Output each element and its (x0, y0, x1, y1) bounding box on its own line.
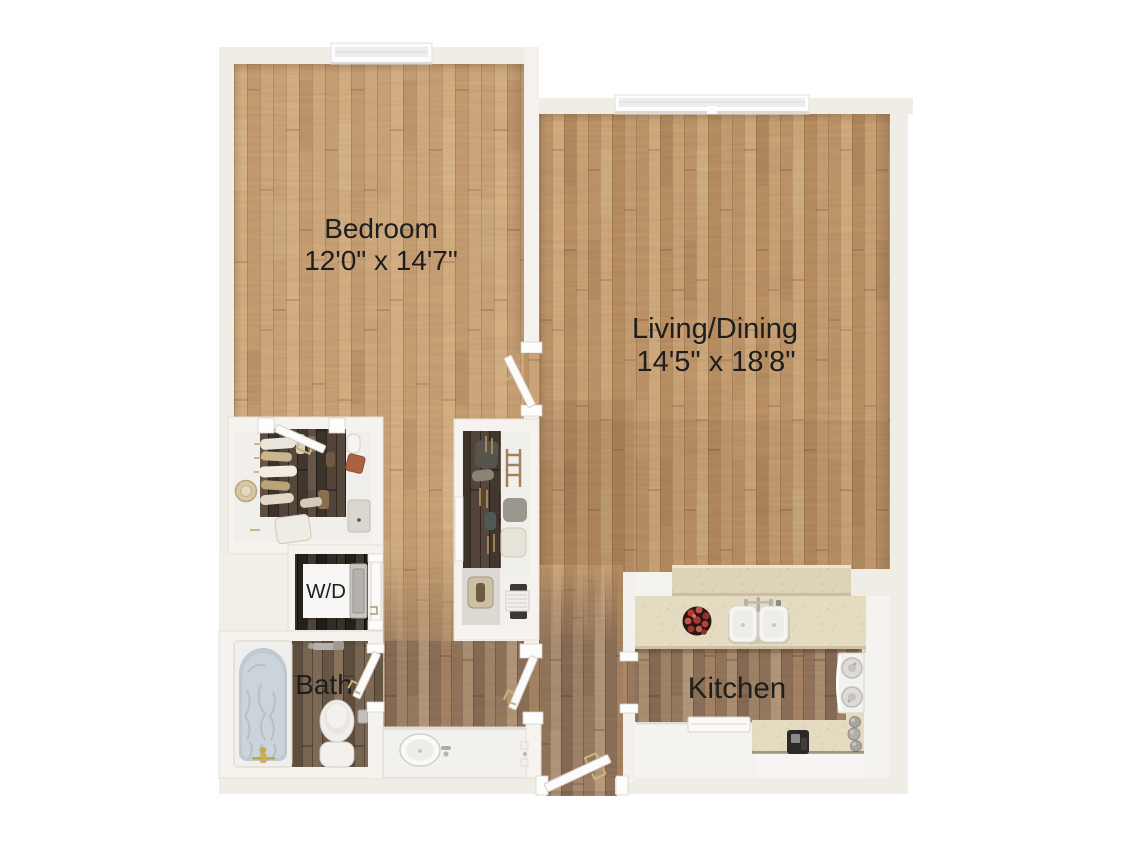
svg-text:Bath: Bath (295, 669, 353, 700)
svg-text:Bedroom: Bedroom (324, 213, 438, 244)
svg-text:W/D: W/D (306, 580, 346, 603)
svg-text:Living/Dining: Living/Dining (632, 313, 798, 345)
svg-text:12'0" x 14'7": 12'0" x 14'7" (304, 245, 458, 276)
svg-text:Kitchen: Kitchen (688, 672, 786, 705)
svg-text:14'5" x 18'8": 14'5" x 18'8" (636, 346, 795, 378)
